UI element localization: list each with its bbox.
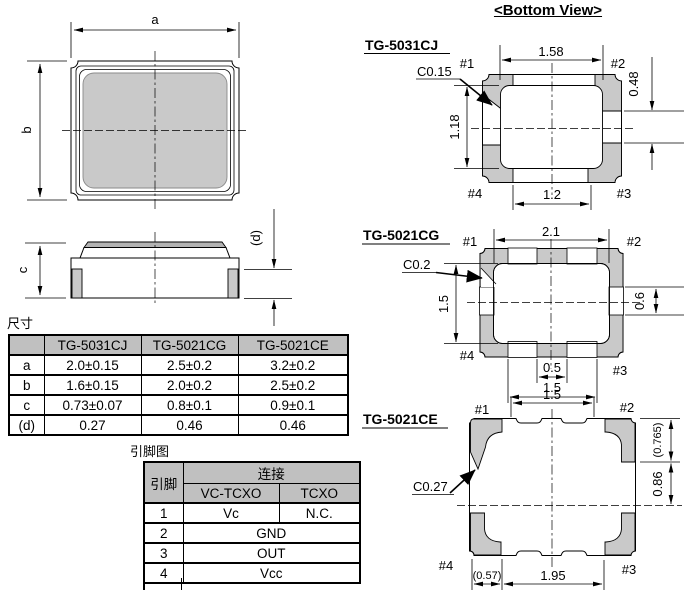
dim-value: 0.9±0.1	[238, 395, 348, 415]
dim-row-label: (d)	[9, 415, 44, 435]
dim-value: 0.46	[141, 415, 238, 435]
table-row: 1 Vc N.C.	[144, 503, 360, 523]
dim-col-tg5021ce: TG-5021CE	[238, 335, 348, 355]
dim-col-tg5021cg: TG-5021CG	[141, 335, 238, 355]
pin4-label: #4	[468, 186, 482, 201]
dim-0.48: 0.48	[626, 71, 641, 96]
dim-1.5: 1.5	[543, 387, 561, 402]
pin-number: 1	[144, 503, 183, 523]
pin-table-title: 引脚图	[130, 441, 169, 460]
pin2-label: #2	[627, 234, 641, 249]
pin-connection-table: 引脚 连接 VC-TCXO TCXO 1 Vc N.C. 2 GND 3 OUT…	[143, 461, 361, 584]
table-row: 3 OUT	[144, 543, 360, 563]
pin-number: 2	[144, 523, 183, 543]
pin4-label: #4	[439, 558, 453, 573]
dimensions-table: TG-5031CJ TG-5021CG TG-5021CE a 2.0±0.15…	[8, 334, 349, 436]
pin-function-tcxo: N.C.	[279, 503, 360, 523]
chamfer-note-c02: C0.2	[403, 257, 430, 272]
dim-0.86: 0.86	[650, 471, 665, 496]
pin-number: 3	[144, 543, 183, 563]
pin-function: OUT	[183, 543, 360, 563]
dim-1.5-left: 1.5	[436, 295, 451, 313]
table-row: a 2.0±0.15 2.5±0.2 3.2±0.2	[9, 355, 348, 375]
table-row: (d) 0.27 0.46 0.46	[9, 415, 348, 435]
dim-value: 2.0±0.2	[141, 375, 238, 395]
table-row: 2 GND	[144, 523, 360, 543]
pin-header: 引脚	[144, 462, 183, 503]
tg-5021ce-label: TG-5021CE	[363, 411, 438, 427]
chamfer-note-c027: C0.27	[413, 479, 448, 494]
dim-1.2: 1.2	[543, 187, 561, 202]
tg-5021cg-label: TG-5021CG	[363, 227, 439, 243]
dim-value: 0.8±0.1	[141, 395, 238, 415]
dim-value: 2.5±0.2	[238, 375, 348, 395]
pin-function-vctcxo: Vc	[183, 503, 279, 523]
pin1-label: #1	[475, 402, 489, 417]
table-row: b 1.6±0.15 2.0±0.2 2.5±0.2	[9, 375, 348, 395]
dim-value: 3.2±0.2	[238, 355, 348, 375]
pin-function: Vcc	[183, 563, 360, 583]
table-row: c 0.73±0.07 0.8±0.1 0.9±0.1	[9, 395, 348, 415]
chamfer-note-c015: C0.15	[417, 64, 452, 79]
tcxo-header: TCXO	[279, 484, 360, 504]
pin1-label: #1	[460, 56, 474, 71]
pin-function: GND	[183, 523, 360, 543]
dim-value: 0.27	[44, 415, 141, 435]
dim-0.5: 0.5	[543, 360, 561, 375]
dim-0.765: (0.765)	[652, 423, 664, 458]
dim-value: 0.73±0.07	[44, 395, 141, 415]
dim-2.1: 2.1	[542, 224, 560, 239]
pin-number: 4	[144, 563, 183, 583]
dim-row-label: b	[9, 375, 44, 395]
dim-0.57: (0.57)	[473, 570, 502, 582]
tg-5031cj-label: TG-5031CJ	[365, 37, 438, 53]
pin4-label: #4	[460, 348, 474, 363]
pin2-label: #2	[620, 400, 634, 415]
dim-col-blank	[9, 335, 44, 355]
vc-tcxo-header: VC-TCXO	[183, 484, 279, 504]
dim-1.58: 1.58	[538, 44, 563, 59]
dim-row-label: c	[9, 395, 44, 415]
castellation-gap	[567, 248, 597, 264]
castellation-gap	[480, 287, 495, 315]
dim-value: 2.0±0.15	[44, 355, 141, 375]
table-row: 4 Vcc	[144, 563, 360, 583]
dim-1.95: 1.95	[540, 568, 565, 583]
connection-header: 连接	[183, 462, 360, 484]
pin3-label: #3	[622, 562, 636, 577]
pin-table-cutoff-border	[143, 578, 145, 590]
pin2-label: #2	[611, 56, 625, 71]
dim-value: 1.6±0.15	[44, 375, 141, 395]
dim-value: 0.46	[238, 415, 348, 435]
pin3-label: #3	[617, 186, 631, 201]
cavity	[501, 86, 603, 169]
datasheet-drawing-page: a b c	[0, 0, 686, 590]
castellation-gap	[508, 248, 537, 264]
dimensions-table-title: 尺寸	[7, 313, 33, 332]
pin-table-cutoff-border	[181, 578, 182, 590]
dim-value: 2.5±0.2	[141, 355, 238, 375]
dim-0.6: 0.6	[632, 292, 647, 310]
pin1-label: #1	[463, 234, 477, 249]
dim-col-tg5031cj: TG-5031CJ	[44, 335, 141, 355]
dim-row-label: a	[9, 355, 44, 375]
pin3-label: #3	[613, 363, 627, 378]
dim-1.18: 1.18	[447, 114, 462, 139]
castellation-gap	[609, 287, 624, 315]
tg-5021ce-outline	[470, 419, 636, 556]
tg-5031cj-bottom-view: TG-5031CJ 1.58 1.18 0.48	[0, 0, 686, 215]
